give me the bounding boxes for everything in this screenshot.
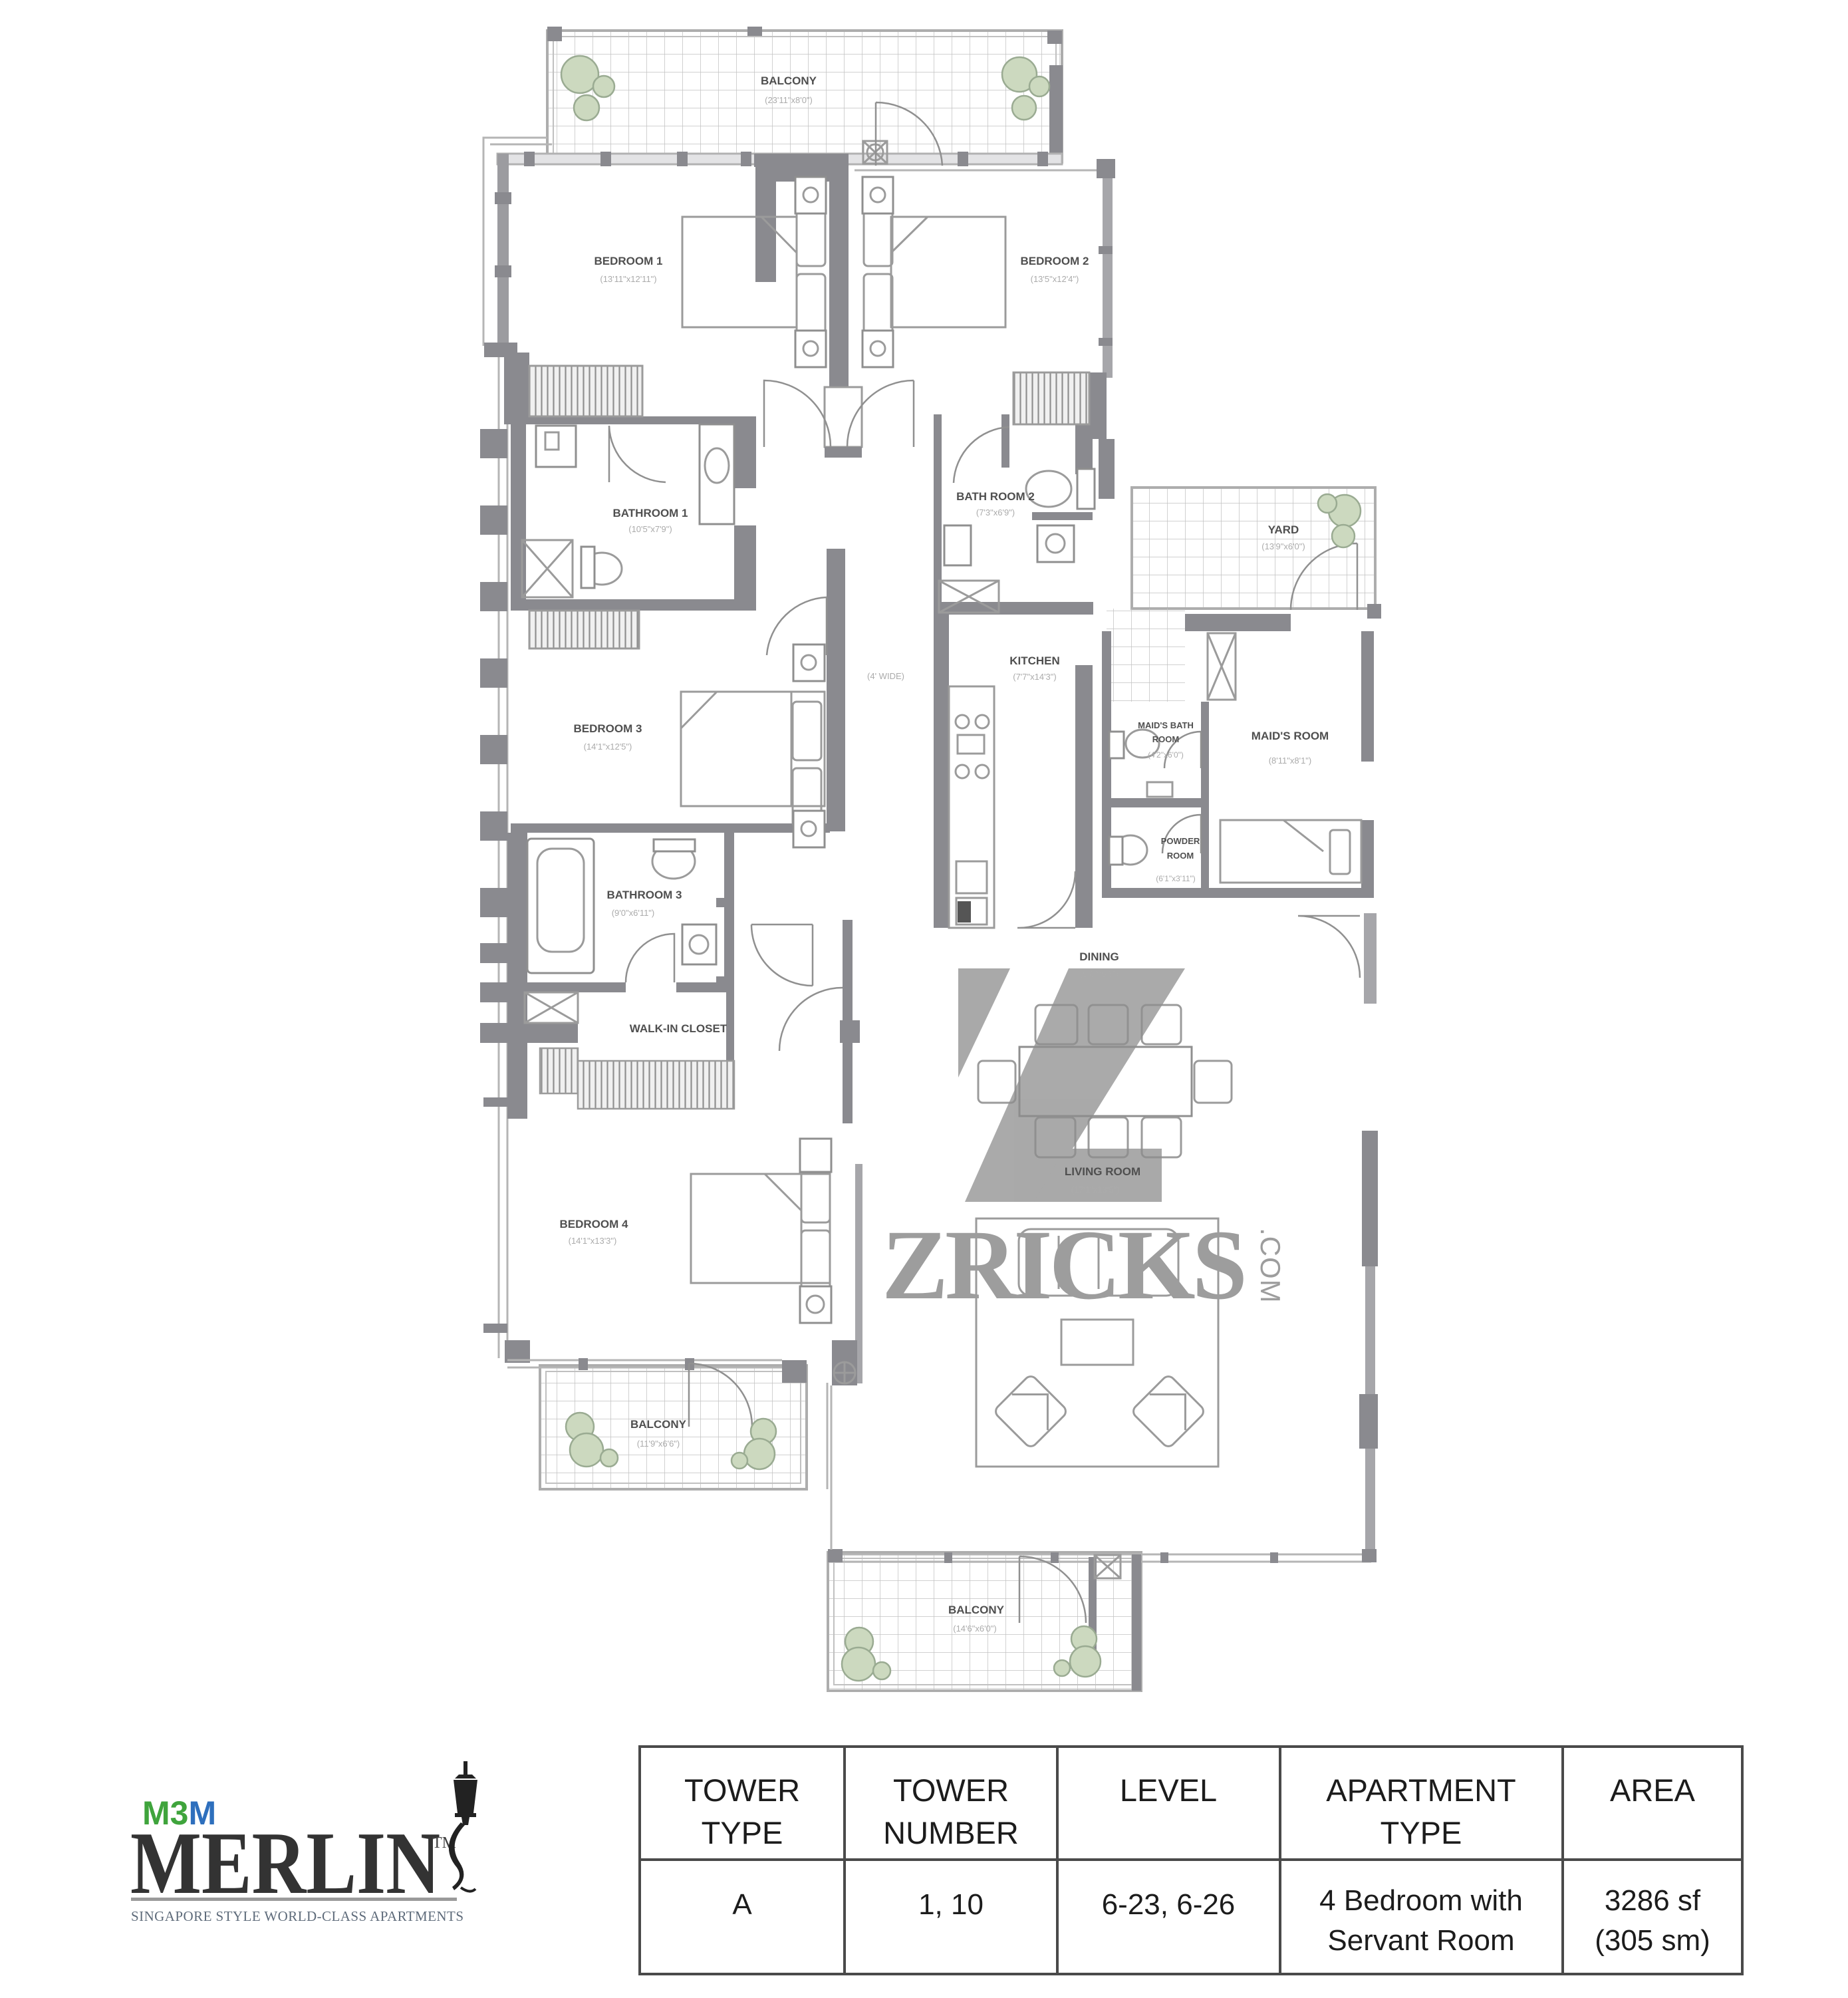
svg-text:(9'0"x6'11"): (9'0"x6'11") bbox=[612, 908, 655, 918]
svg-text:(13'5"x12'4"): (13'5"x12'4") bbox=[1031, 274, 1079, 284]
svg-text:TOWER: TOWER bbox=[684, 1773, 800, 1808]
svg-text:(14'6"x6'0"): (14'6"x6'0") bbox=[953, 1624, 997, 1634]
svg-text:(7'3"x6'9"): (7'3"x6'9") bbox=[976, 507, 1015, 517]
svg-text:(4'2"x6'0"): (4'2"x6'0") bbox=[1148, 750, 1184, 760]
svg-text:ZRICKS: ZRICKS bbox=[882, 1210, 1248, 1320]
svg-text:Servant Room: Servant Room bbox=[1327, 1924, 1514, 1957]
svg-text:NUMBER: NUMBER bbox=[883, 1815, 1019, 1850]
svg-text:BALCONY: BALCONY bbox=[630, 1418, 687, 1431]
svg-text:4 Bedroom with: 4 Bedroom with bbox=[1319, 1884, 1523, 1917]
svg-text:KITCHEN: KITCHEN bbox=[1009, 654, 1060, 667]
svg-text:(305 sm): (305 sm) bbox=[1595, 1924, 1710, 1957]
svg-text:ROOM: ROOM bbox=[1152, 734, 1179, 744]
svg-text:TYPE: TYPE bbox=[702, 1815, 783, 1850]
svg-text:ROOM: ROOM bbox=[1167, 851, 1194, 861]
svg-text:BEDROOM 2: BEDROOM 2 bbox=[1021, 255, 1089, 267]
svg-text:(4' WIDE): (4' WIDE) bbox=[867, 671, 904, 681]
svg-text:1, 10: 1, 10 bbox=[918, 1888, 984, 1921]
svg-text:BEDROOM 3: BEDROOM 3 bbox=[574, 722, 642, 735]
svg-text:AREA: AREA bbox=[1610, 1773, 1696, 1808]
svg-text:(17'1"x13'5"): (17'1"x13'5") bbox=[1071, 1185, 1120, 1195]
svg-text:(13'11"x12'11"): (13'11"x12'11") bbox=[600, 274, 656, 284]
svg-text:BALCONY: BALCONY bbox=[948, 1604, 1005, 1616]
svg-text:BALCONY: BALCONY bbox=[761, 74, 817, 87]
svg-text:6-23, 6-26: 6-23, 6-26 bbox=[1102, 1888, 1236, 1921]
svg-text:(6'1"x3'11"): (6'1"x3'11") bbox=[1156, 874, 1196, 883]
svg-text:(13'9"x6'0"): (13'9"x6'0") bbox=[1261, 541, 1305, 551]
svg-text:WALK-IN CLOSET: WALK-IN CLOSET bbox=[630, 1022, 727, 1035]
svg-text:.COM: .COM bbox=[1255, 1228, 1286, 1304]
svg-text:A: A bbox=[732, 1888, 752, 1921]
svg-text:MAID'S ROOM: MAID'S ROOM bbox=[1252, 730, 1329, 742]
svg-text:YARD: YARD bbox=[1268, 523, 1299, 536]
svg-text:(10'5"x7'9"): (10'5"x7'9") bbox=[628, 524, 672, 534]
svg-text:MAID'S BATH: MAID'S BATH bbox=[1138, 720, 1194, 730]
svg-text:BATHROOM 1: BATHROOM 1 bbox=[612, 507, 688, 519]
svg-text:LEVEL: LEVEL bbox=[1120, 1773, 1217, 1808]
svg-text:3286 sf: 3286 sf bbox=[1605, 1884, 1701, 1917]
svg-text:(9'6"x9'6"): (9'6"x9'6") bbox=[1080, 969, 1119, 979]
svg-text:LIVING ROOM: LIVING ROOM bbox=[1065, 1165, 1140, 1178]
svg-text:(14'1"x13'3"): (14'1"x13'3") bbox=[569, 1236, 617, 1246]
svg-text:MERLIN: MERLIN bbox=[130, 1814, 440, 1912]
svg-text:TYPE: TYPE bbox=[1381, 1815, 1462, 1850]
svg-text:(8'11"x8'1"): (8'11"x8'1") bbox=[1269, 756, 1312, 766]
svg-text:TOWER: TOWER bbox=[893, 1773, 1009, 1808]
svg-text:(7'7"x14'3"): (7'7"x14'3") bbox=[1013, 672, 1057, 682]
svg-text:(23'11"x8'0"): (23'11"x8'0") bbox=[765, 95, 813, 105]
svg-text:BEDROOM 1: BEDROOM 1 bbox=[594, 255, 663, 267]
svg-text:BEDROOM 4: BEDROOM 4 bbox=[560, 1218, 629, 1230]
svg-text:APARTMENT: APARTMENT bbox=[1326, 1773, 1516, 1808]
svg-text:(14'1"x12'5"): (14'1"x12'5") bbox=[584, 742, 632, 752]
svg-text:DINING: DINING bbox=[1079, 950, 1119, 963]
svg-text:BATHROOM 3: BATHROOM 3 bbox=[606, 889, 682, 901]
svg-text:SINGAPORE STYLE WORLD-CLASS AP: SINGAPORE STYLE WORLD-CLASS APARTMENTS bbox=[131, 1908, 463, 1924]
svg-text:BATH ROOM 2: BATH ROOM 2 bbox=[956, 490, 1035, 503]
svg-text:(11'9"x6'6"): (11'9"x6'6") bbox=[637, 1439, 680, 1449]
svg-text:POWDER: POWDER bbox=[1161, 836, 1200, 846]
